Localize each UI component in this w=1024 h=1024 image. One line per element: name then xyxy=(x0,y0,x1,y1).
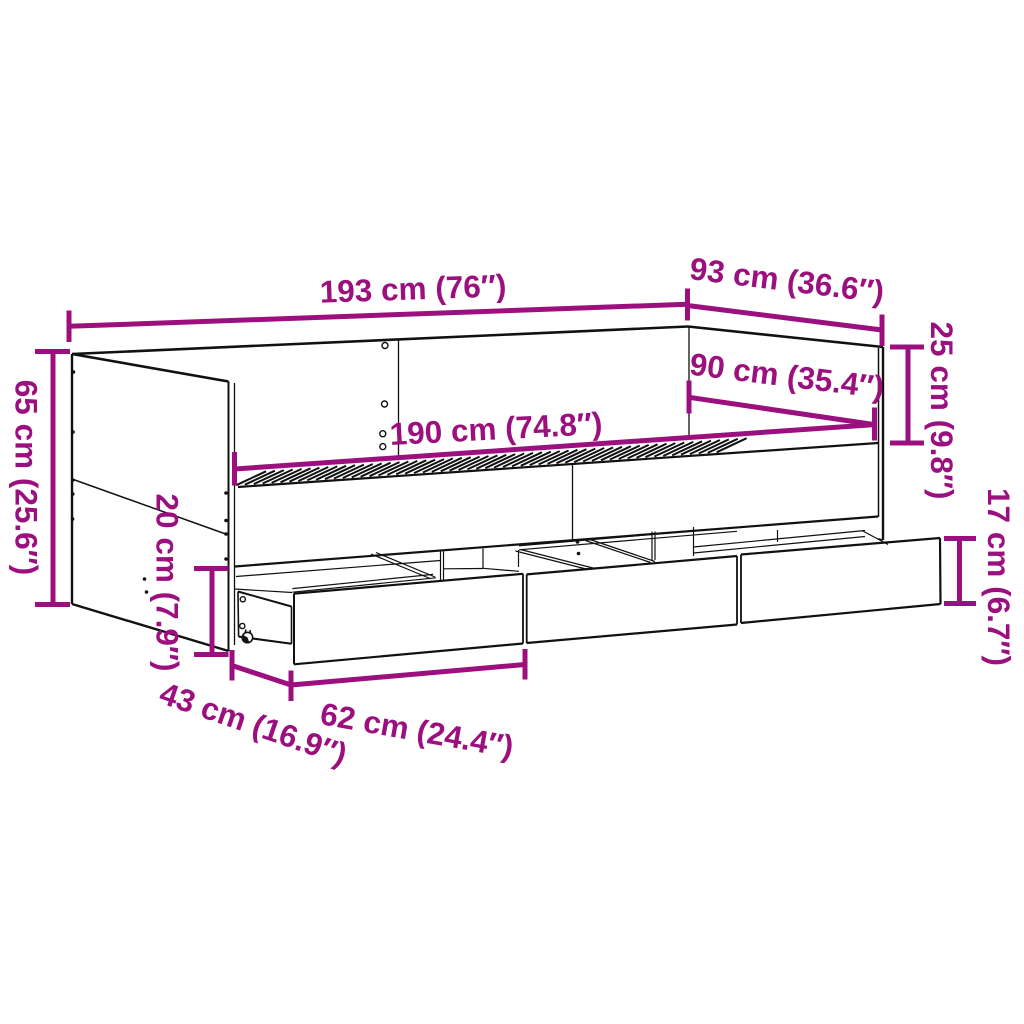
svg-text:90 cm (35.4″): 90 cm (35.4″) xyxy=(688,346,886,406)
svg-text:17 cm (6.7″): 17 cm (6.7″) xyxy=(981,488,1017,666)
svg-text:93 cm (36.6″): 93 cm (36.6″) xyxy=(688,250,886,310)
svg-text:65 cm (25.6″): 65 cm (25.6″) xyxy=(9,380,45,575)
svg-text:62 cm (24.4″): 62 cm (24.4″) xyxy=(318,695,517,764)
svg-text:193 cm (76″): 193 cm (76″) xyxy=(319,267,507,309)
svg-text:20 cm (7.9″): 20 cm (7.9″) xyxy=(150,494,186,672)
svg-text:25 cm (9.8″): 25 cm (9.8″) xyxy=(924,322,960,500)
